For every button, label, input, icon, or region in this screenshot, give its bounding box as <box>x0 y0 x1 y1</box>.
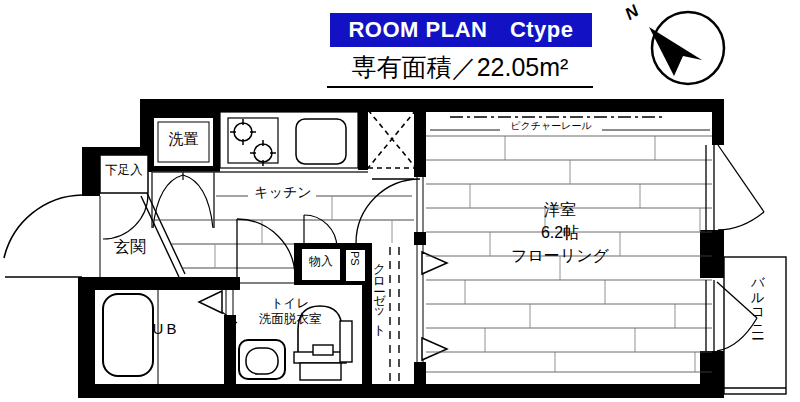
front-door <box>4 195 82 277</box>
sink-icon <box>296 119 346 164</box>
shoe-box-label: 下足入 <box>100 163 148 177</box>
room-floor-label: フローリング <box>480 247 640 265</box>
entrance-step <box>141 193 185 277</box>
picture-rail-label: ピクチャーレール <box>500 120 602 132</box>
plan-type-title: ROOM PLAN Ctype <box>330 13 592 47</box>
room-door <box>356 177 423 243</box>
room-name-label: 洋室 <box>480 201 640 219</box>
shoe-box-door-arc <box>103 194 148 239</box>
stove-icon <box>228 118 278 163</box>
pipe-space-label: PS <box>348 251 361 281</box>
room-size-label: 6.2帖 <box>480 224 640 242</box>
washer-double-door <box>152 169 214 228</box>
kitchen-label: キッチン <box>248 184 318 200</box>
washer-place-label: 洗置 <box>153 130 214 147</box>
closet-label: クローゼット <box>372 254 386 382</box>
floor-plan-page: ROOM PLAN Ctype 専有面積／22.05m² N 洗置 下足入 キッ… <box>0 0 800 402</box>
toilet-icon <box>239 340 285 379</box>
unit-bath-label: UB <box>138 320 194 337</box>
compass-icon <box>649 12 724 84</box>
bath-door-marker <box>199 291 222 313</box>
toilet-door <box>236 219 295 283</box>
balcony-label: バルコニー <box>750 267 766 389</box>
washroom-label: 洗面脱衣室 <box>240 312 340 326</box>
fridge-space <box>368 110 416 168</box>
closet-door-markers <box>422 252 447 360</box>
floor-area-label: 専有面積／22.05m² <box>327 50 593 88</box>
storage-label: 物入 <box>301 255 341 269</box>
toilet-label: トイレ <box>245 296 335 310</box>
entrance-label: 玄関 <box>100 238 160 256</box>
